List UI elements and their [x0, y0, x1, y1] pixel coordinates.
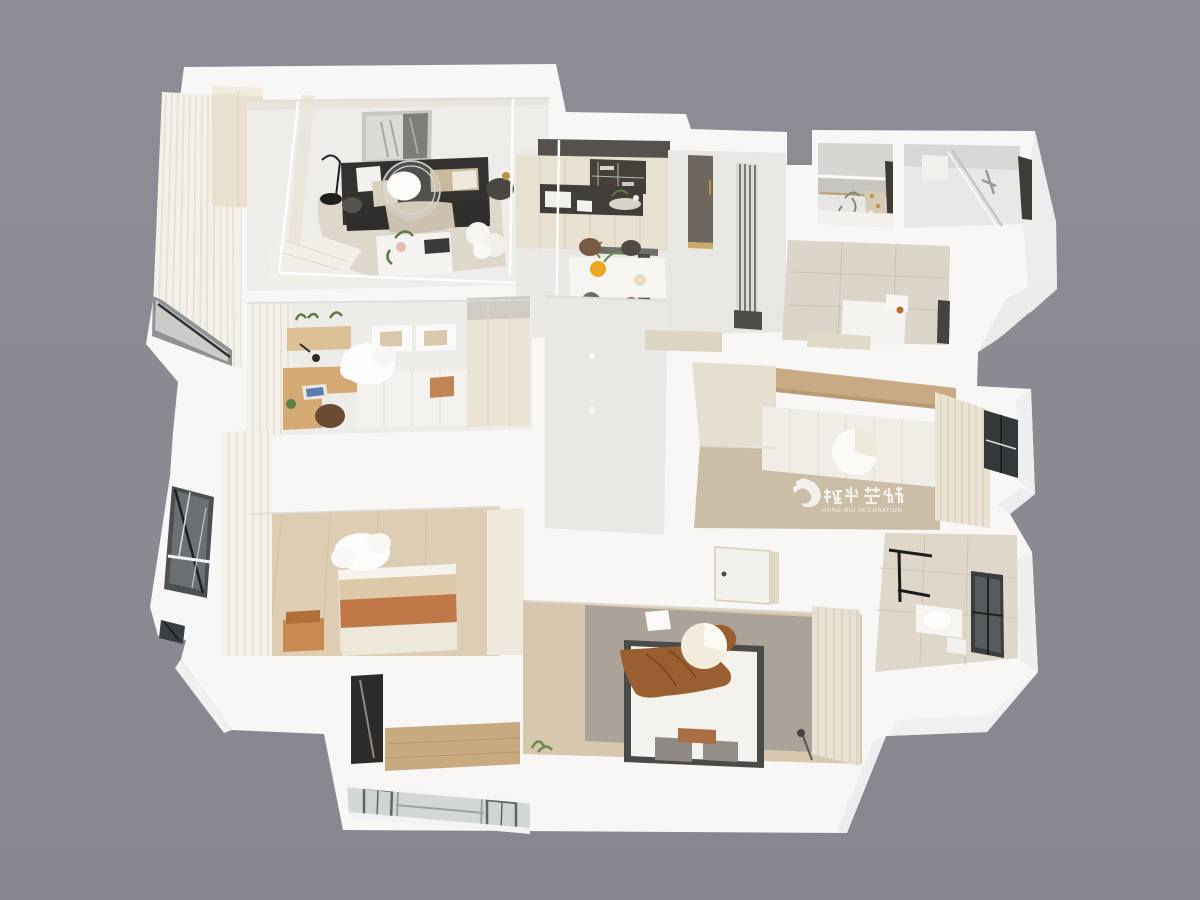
svg-text:HONG NIU DECORATION: HONG NIU DECORATION: [822, 508, 903, 514]
